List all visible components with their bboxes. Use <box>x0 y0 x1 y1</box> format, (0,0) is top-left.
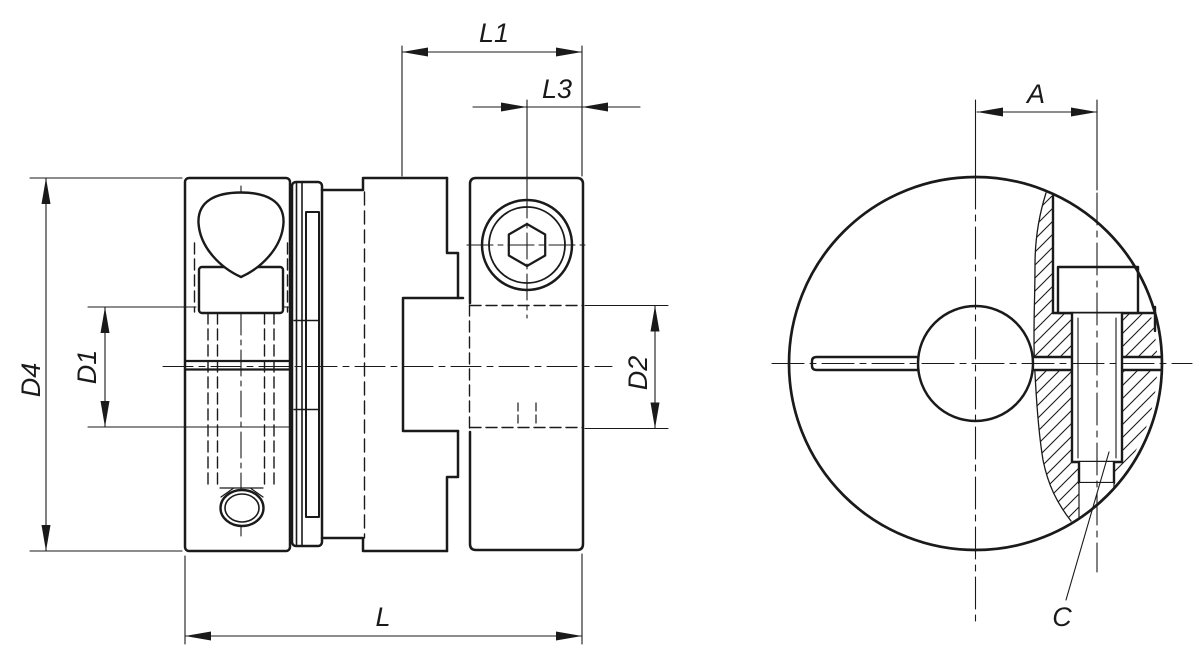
clamp-slit-lines <box>185 361 291 370</box>
dim-label-L3: L3 <box>542 74 572 104</box>
dimension-A: A <box>976 79 1098 190</box>
screw-head <box>1058 267 1138 313</box>
dim-label-A: A <box>1025 79 1045 109</box>
dimension-L3: L3 <box>473 74 640 192</box>
center-disc <box>292 178 447 551</box>
dim-label-D1: D1 <box>72 350 102 385</box>
dimension-L: L <box>185 554 582 644</box>
clamp-screw-section <box>195 186 288 536</box>
dim-label-C: C <box>1052 602 1072 632</box>
dim-label-L: L <box>375 602 390 632</box>
dim-label-D4: D4 <box>16 363 46 398</box>
dim-label-L1: L1 <box>479 18 509 48</box>
socket-screw-front <box>467 192 588 318</box>
right-hub <box>470 178 584 550</box>
pilot-hole-hidden <box>518 403 536 427</box>
screw-head-top <box>198 193 283 278</box>
bore-pocket <box>403 298 463 431</box>
front-view <box>772 177 1192 622</box>
coupling-technical-drawing: L1 L3 L D4 D1 <box>0 0 1200 669</box>
claw-bottom-edge <box>322 538 447 551</box>
claw-profile <box>403 178 463 551</box>
relief-hole <box>221 490 264 526</box>
dim-label-D2: D2 <box>623 356 653 391</box>
claw-top-edge <box>322 178 447 190</box>
dimension-D1: D1 <box>72 307 110 427</box>
side-section-view <box>88 178 612 551</box>
